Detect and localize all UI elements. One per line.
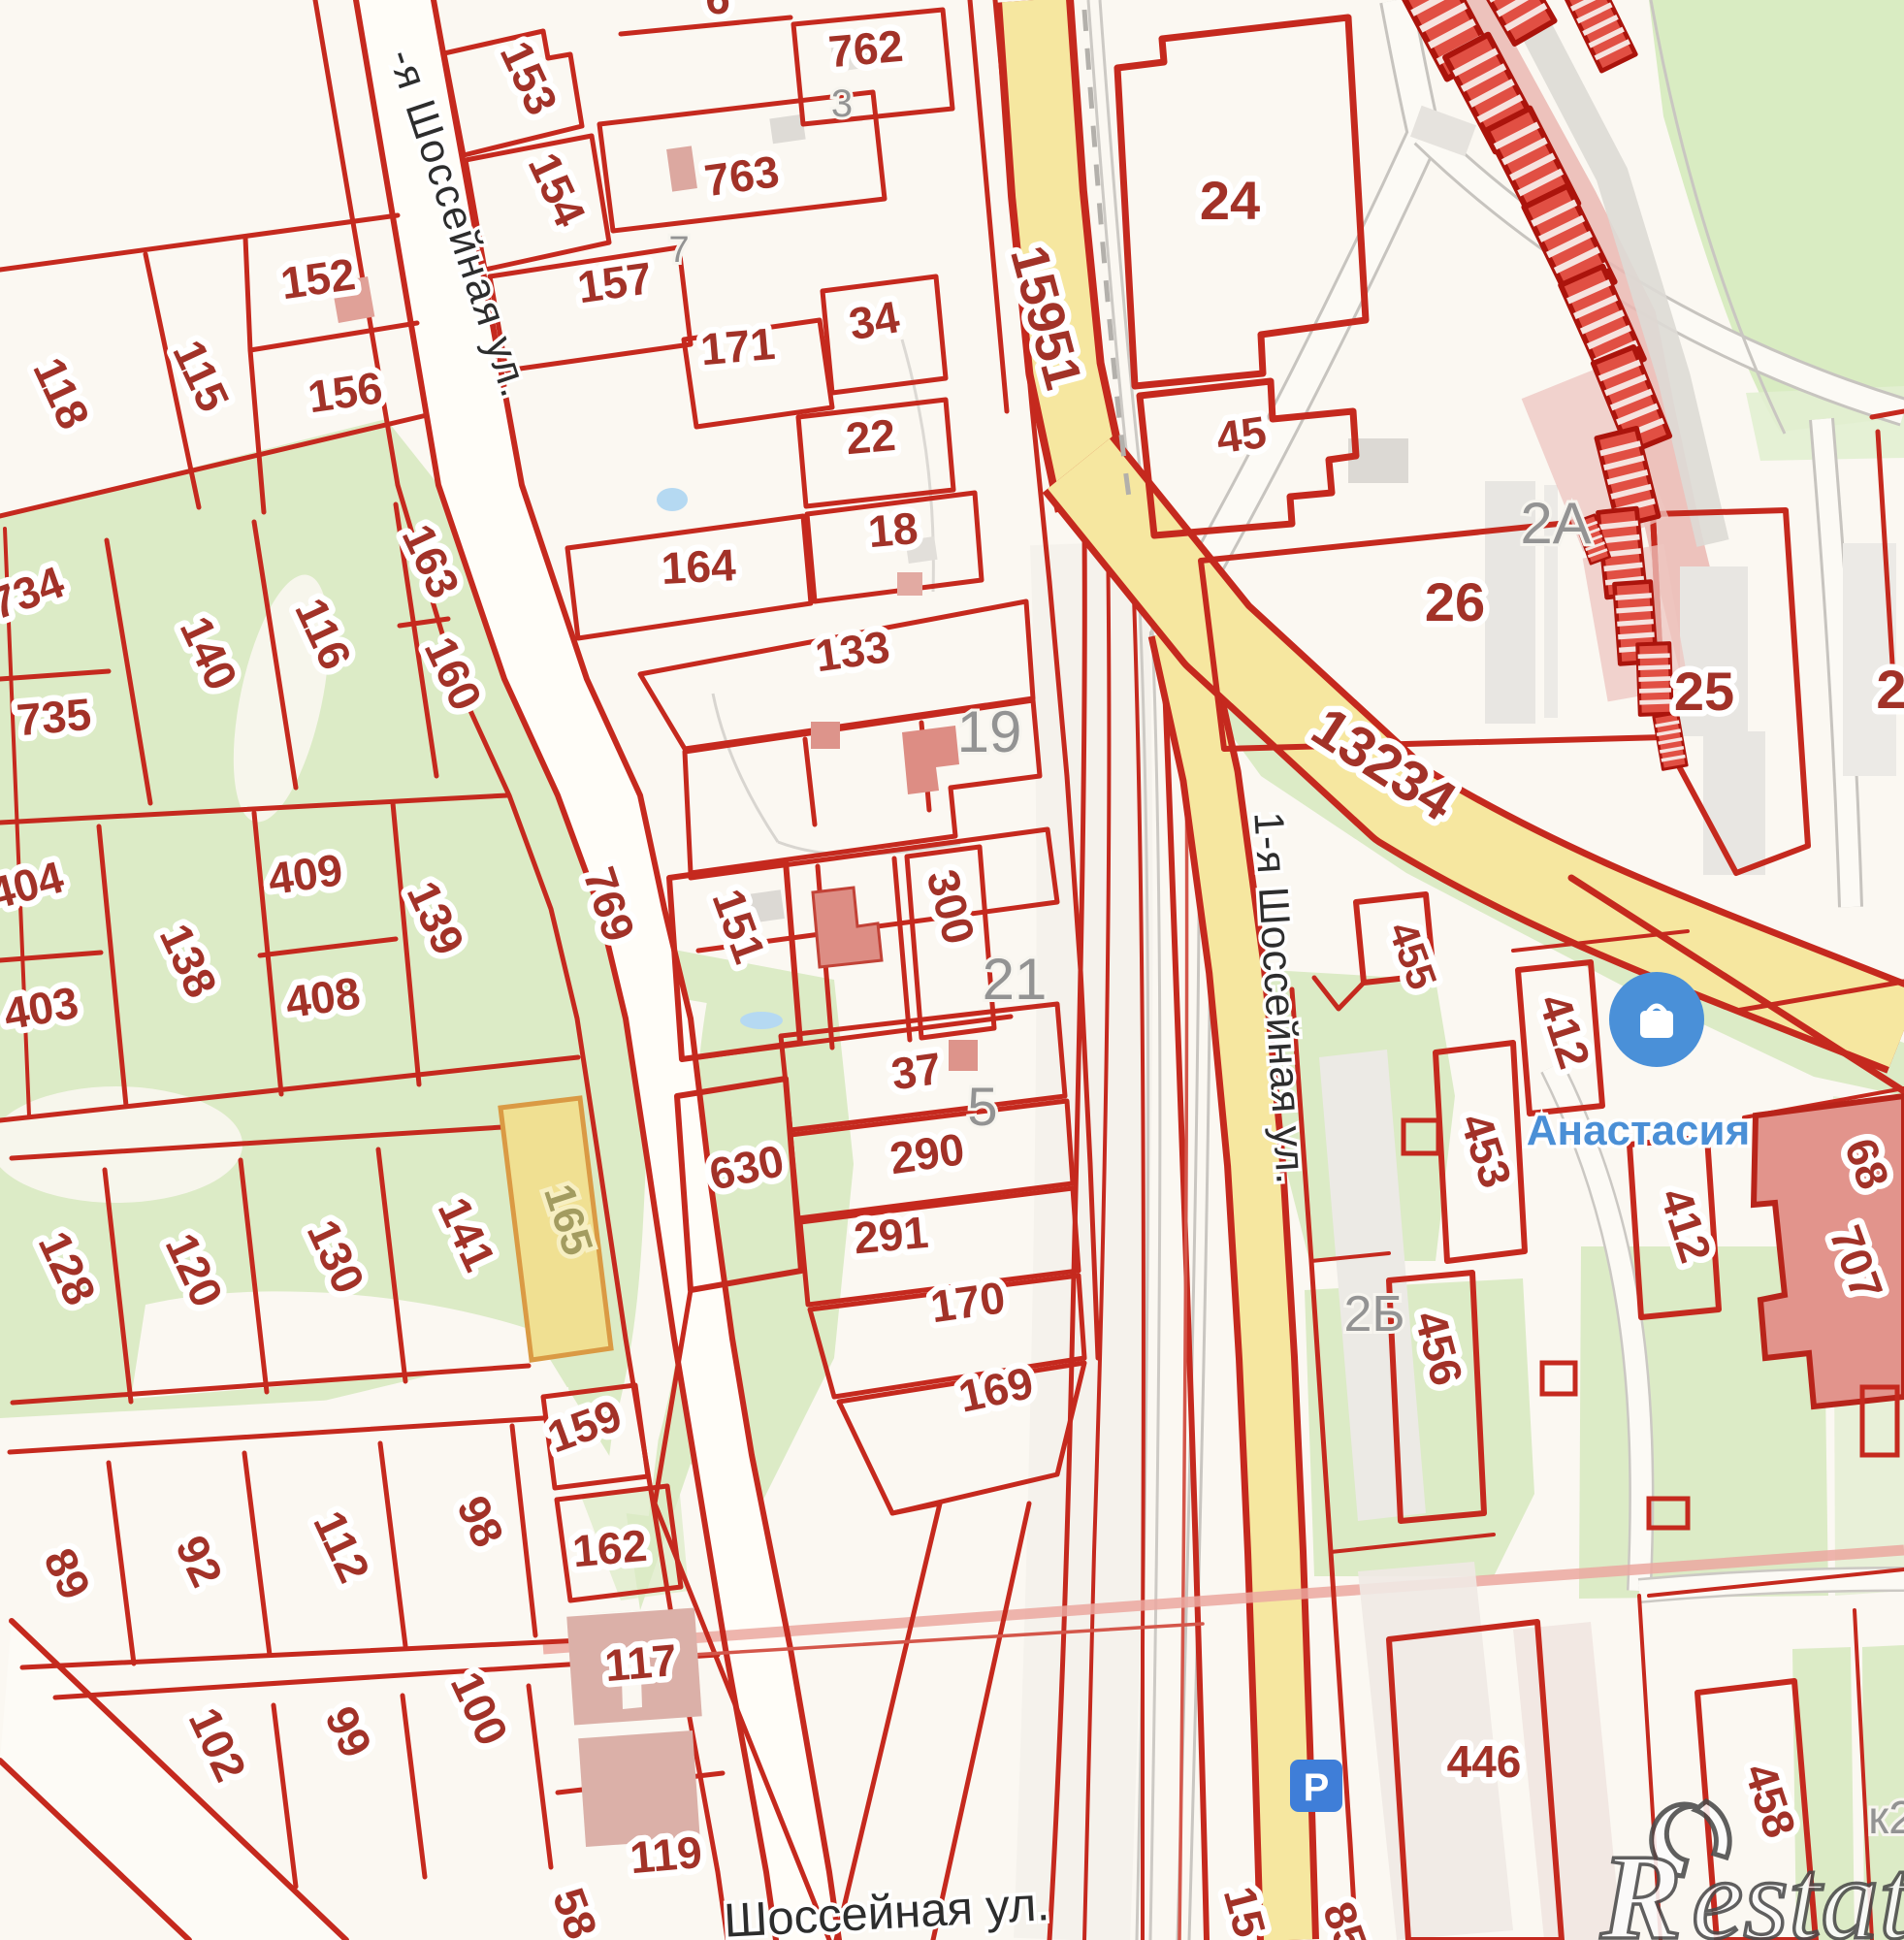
svg-text:162: 162 <box>570 1520 649 1576</box>
svg-text:291: 291 <box>852 1207 930 1263</box>
svg-text:45: 45 <box>1213 406 1270 464</box>
svg-text:34: 34 <box>846 291 904 349</box>
svg-text:3: 3 <box>831 82 853 125</box>
svg-text:24: 24 <box>1200 170 1260 231</box>
svg-text:Анастасия: Анастасия <box>1527 1107 1751 1154</box>
svg-text:735: 735 <box>15 689 93 745</box>
svg-text:19: 19 <box>957 699 1022 764</box>
svg-text:117: 117 <box>602 1634 678 1691</box>
svg-text:R: R <box>1599 1830 1682 1940</box>
svg-text:2Б: 2Б <box>1343 1286 1404 1342</box>
svg-text:763: 763 <box>701 145 782 206</box>
svg-text:21: 21 <box>983 947 1048 1012</box>
svg-text:7: 7 <box>668 230 689 271</box>
svg-text:164: 164 <box>660 539 737 594</box>
svg-text:170: 170 <box>927 1272 1008 1332</box>
svg-text:762: 762 <box>826 20 905 77</box>
svg-text:25: 25 <box>1674 661 1734 722</box>
svg-text:119: 119 <box>628 1827 703 1883</box>
svg-text:408: 408 <box>282 967 363 1027</box>
svg-text:P: P <box>1304 1766 1330 1809</box>
svg-text:152: 152 <box>277 248 358 308</box>
svg-text:18: 18 <box>866 502 920 557</box>
svg-text:37: 37 <box>888 1043 945 1100</box>
svg-text:2: 2 <box>1876 659 1904 720</box>
svg-text:171: 171 <box>698 318 777 374</box>
svg-text:estate: estate <box>1692 1834 1904 1940</box>
svg-text:2A: 2A <box>1520 491 1591 556</box>
svg-text:446: 446 <box>1447 1736 1522 1787</box>
svg-text:157: 157 <box>574 252 655 312</box>
svg-text:156: 156 <box>305 362 385 422</box>
svg-text:6: 6 <box>705 0 730 23</box>
svg-text:290: 290 <box>887 1123 967 1183</box>
svg-text:26: 26 <box>1425 571 1485 632</box>
svg-text:22: 22 <box>844 409 898 464</box>
svg-text:409: 409 <box>265 844 345 904</box>
svg-text:5: 5 <box>967 1076 997 1137</box>
svg-text:133: 133 <box>812 621 892 681</box>
